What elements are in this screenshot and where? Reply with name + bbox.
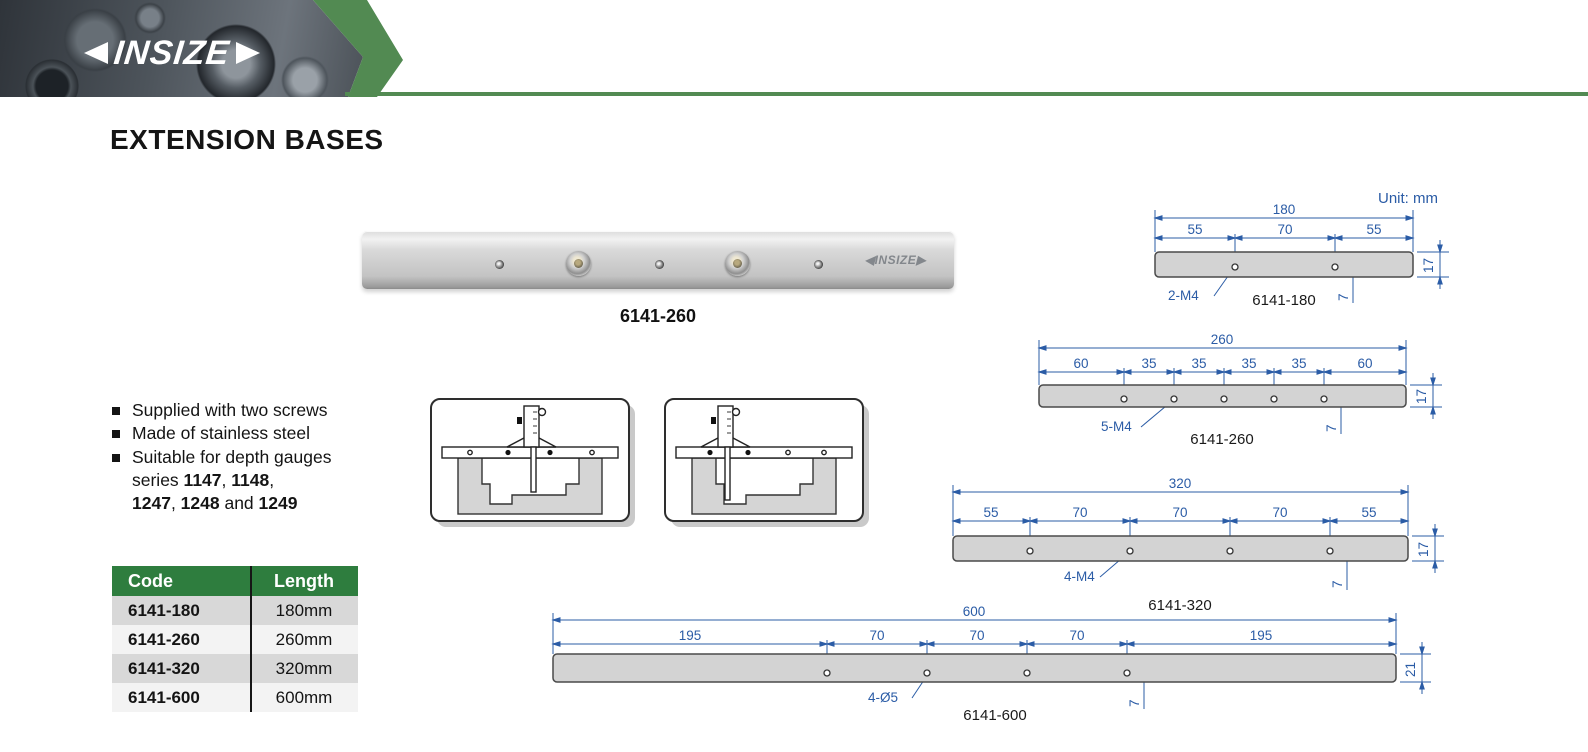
brand-right-arrow-icon xyxy=(236,42,260,64)
drawing-caption: 6141-600 xyxy=(963,707,1026,723)
feature-item: Suitable for depth gauges series 1147, 1… xyxy=(112,446,402,516)
dimension-arrow xyxy=(1433,561,1437,568)
dimension-arrow xyxy=(1406,236,1413,240)
dimension-arrow xyxy=(1027,642,1034,646)
dimension-arrow xyxy=(927,642,934,646)
svg-text:17: 17 xyxy=(1421,258,1436,273)
dimension-arrow xyxy=(1389,642,1396,646)
dimension-arrow xyxy=(1230,519,1237,523)
green-rule xyxy=(345,92,1588,96)
dimension-arrow xyxy=(1130,519,1137,523)
dimension-arrow xyxy=(1124,370,1131,374)
dimension-arrow xyxy=(1433,529,1437,536)
mount-hole xyxy=(1271,396,1277,402)
product-caption: 6141-260 xyxy=(362,306,954,327)
workpiece xyxy=(692,458,836,514)
dimension-arrow xyxy=(1127,642,1134,646)
bullet-square-icon xyxy=(112,454,120,462)
brand-left-arrow-icon xyxy=(84,42,108,64)
dimension-arrow xyxy=(1274,370,1281,374)
svg-text:70: 70 xyxy=(969,628,984,643)
dimension-arrow xyxy=(553,618,560,622)
photo-hole-1 xyxy=(495,260,504,269)
header-banner: INSIZE xyxy=(0,0,1588,97)
page-title: EXTENSION BASES xyxy=(110,124,384,156)
dimension-arrow xyxy=(1030,519,1037,523)
table-column-divider xyxy=(250,566,252,712)
dimension-arrow xyxy=(1330,519,1337,523)
svg-text:55: 55 xyxy=(1361,505,1376,520)
drawing-6141-260: 260 60 35 35 35 35 60 5-M4 17 7 6141-260 xyxy=(1025,330,1465,455)
dimension-arrow xyxy=(1406,216,1413,220)
base-bar xyxy=(1155,252,1413,277)
photo-hole-2 xyxy=(655,260,664,269)
dimension-arrow xyxy=(1039,370,1046,374)
dimension-arrow xyxy=(1335,236,1342,240)
dimension-arrow xyxy=(1420,682,1424,689)
mount-hole xyxy=(1127,548,1133,554)
table-header-row: Code Length xyxy=(112,566,358,596)
svg-text:70: 70 xyxy=(1172,505,1187,520)
col-header-length: Length xyxy=(250,571,358,592)
feature-item: Made of stainless steel xyxy=(112,422,402,445)
dimension-arrow xyxy=(1401,490,1408,494)
dimension-arrow xyxy=(1431,407,1435,414)
bullet-square-icon xyxy=(112,430,120,438)
svg-text:55: 55 xyxy=(1366,222,1381,237)
svg-text:55: 55 xyxy=(1187,222,1202,237)
dimension-arrow xyxy=(1420,647,1424,654)
dimension-arrow xyxy=(953,519,960,523)
dimension-arrow xyxy=(1174,370,1181,374)
dimension-arrow xyxy=(1235,236,1242,240)
catalog-page: INSIZE EXTENSION BASES ◀INSIZE▶ 6141-260… xyxy=(0,0,1588,752)
mount-hole xyxy=(1171,396,1177,402)
svg-text:7: 7 xyxy=(1336,293,1351,301)
svg-text:35: 35 xyxy=(1291,356,1306,371)
svg-text:35: 35 xyxy=(1141,356,1156,371)
usage-diagram-1-art xyxy=(432,400,628,520)
dimension-arrow xyxy=(1324,370,1331,374)
mount-hole xyxy=(1227,548,1233,554)
svg-text:70: 70 xyxy=(1277,222,1292,237)
mount-hole xyxy=(1121,396,1127,402)
workpiece xyxy=(458,458,602,514)
svg-text:70: 70 xyxy=(1069,628,1084,643)
dimension-arrow xyxy=(1431,378,1435,385)
svg-text:70: 70 xyxy=(1272,505,1287,520)
svg-text:60: 60 xyxy=(1073,356,1088,371)
svg-text:21: 21 xyxy=(1403,662,1418,677)
dimension-arrow xyxy=(1401,519,1408,523)
svg-text:7: 7 xyxy=(1330,580,1345,588)
svg-text:70: 70 xyxy=(1072,505,1087,520)
table-row: 6141-180 180mm xyxy=(112,596,358,625)
table-row: 6141-260 260mm xyxy=(112,625,358,654)
base-bar xyxy=(953,536,1408,561)
dimension-arrow xyxy=(1224,370,1231,374)
drawing-caption: 6141-260 xyxy=(1190,431,1253,448)
brand-logo: INSIZE xyxy=(84,36,260,70)
photo-screw-1 xyxy=(566,251,591,276)
mount-hole xyxy=(1221,396,1227,402)
mount-hole xyxy=(1024,670,1030,676)
mount-hole xyxy=(824,670,830,676)
svg-text:320: 320 xyxy=(1169,478,1192,491)
drawing-caption: 6141-180 xyxy=(1252,292,1315,309)
brand-name: INSIZE xyxy=(112,36,231,70)
usage-diagram-2-art xyxy=(666,400,862,520)
svg-text:55: 55 xyxy=(983,505,998,520)
dimension-arrow xyxy=(1039,346,1046,350)
svg-text:4-M4: 4-M4 xyxy=(1064,569,1095,584)
dimension-arrow xyxy=(1155,236,1162,240)
svg-text:35: 35 xyxy=(1241,356,1256,371)
mount-hole xyxy=(1027,548,1033,554)
bullet-square-icon xyxy=(112,407,120,415)
dimension-arrow xyxy=(1389,618,1396,622)
photo-hole-3 xyxy=(814,260,823,269)
dimension-arrow xyxy=(1438,245,1442,252)
feature-item: Supplied with two screws xyxy=(112,399,402,422)
svg-text:4-Ø5: 4-Ø5 xyxy=(868,690,898,705)
table-row: 6141-320 320mm xyxy=(112,654,358,683)
dimension-arrow xyxy=(1438,277,1442,284)
extension-base xyxy=(442,447,618,458)
etched-logo: ◀INSIZE▶ xyxy=(865,253,926,267)
spec-table: Code Length 6141-180 180mm 6141-260 260m… xyxy=(112,566,358,712)
base-bar xyxy=(553,654,1396,682)
svg-text:2-M4: 2-M4 xyxy=(1168,288,1199,303)
svg-text:35: 35 xyxy=(1191,356,1206,371)
mount-hole xyxy=(1232,264,1238,270)
product-photo: ◀INSIZE▶ xyxy=(362,231,954,289)
svg-text:5-M4: 5-M4 xyxy=(1101,419,1132,434)
mount-hole xyxy=(924,670,930,676)
svg-text:60: 60 xyxy=(1357,356,1372,371)
table-row: 6141-600 600mm xyxy=(112,683,358,712)
mount-hole xyxy=(1321,396,1327,402)
dimension-arrow xyxy=(1155,216,1162,220)
mount-hole xyxy=(1332,264,1338,270)
svg-text:180: 180 xyxy=(1273,202,1296,217)
extension-base xyxy=(676,447,852,458)
dimension-arrow xyxy=(827,642,834,646)
svg-text:17: 17 xyxy=(1416,542,1431,557)
mount-hole xyxy=(1124,670,1130,676)
dimension-arrow xyxy=(553,642,560,646)
usage-diagram-2 xyxy=(664,398,864,522)
dimension-arrow xyxy=(1399,370,1406,374)
svg-text:195: 195 xyxy=(1250,628,1273,643)
drawing-6141-320: 320 55 70 70 70 55 4-M4 17 7 6141-320 xyxy=(938,478,1458,623)
usage-diagram-1 xyxy=(430,398,630,522)
dimension-texts: 260 60 35 35 35 35 60 5-M4 17 7 xyxy=(1073,332,1429,434)
photo-screw-2 xyxy=(725,251,750,276)
svg-text:17: 17 xyxy=(1414,389,1429,404)
svg-text:7: 7 xyxy=(1324,424,1339,432)
dimension-arrow xyxy=(1399,346,1406,350)
dimension-texts: 320 55 70 70 70 55 4-M4 17 7 xyxy=(983,478,1431,588)
svg-text:195: 195 xyxy=(679,628,702,643)
svg-text:7: 7 xyxy=(1127,699,1142,707)
dimension-arrow xyxy=(953,490,960,494)
svg-text:260: 260 xyxy=(1211,332,1234,347)
feature-list: Supplied with two screws Made of stainle… xyxy=(112,399,402,515)
col-header-code: Code xyxy=(112,571,250,592)
svg-text:600: 600 xyxy=(963,605,986,619)
mount-hole xyxy=(1327,548,1333,554)
drawing-6141-180: 180 55 70 55 2-M4 17 7 6141-180 xyxy=(1140,200,1470,317)
drawing-6141-600: 600 195 70 70 70 195 4-Ø5 21 7 6141-600 xyxy=(540,605,1440,728)
svg-text:70: 70 xyxy=(869,628,884,643)
